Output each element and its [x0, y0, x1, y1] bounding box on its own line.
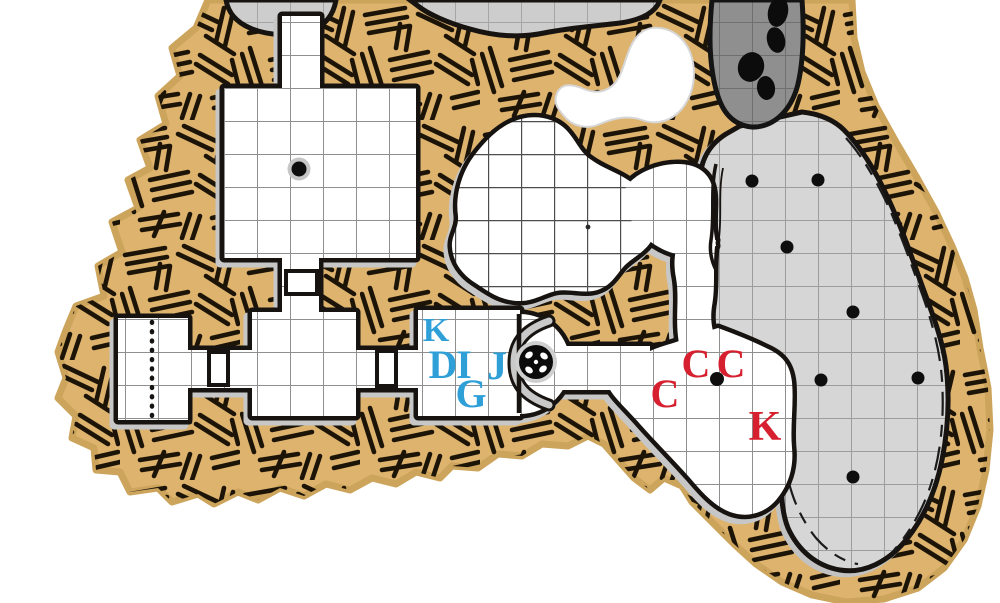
door-icon: [286, 271, 317, 294]
room-label-J-blue: J: [487, 343, 507, 388]
dark-cave-passage: [710, 0, 803, 127]
door-icon: [209, 352, 228, 385]
room-label-D-blue: D: [429, 342, 458, 387]
cavern-label-C-red: C: [682, 341, 711, 386]
stalagmite-dot-icon: [746, 175, 759, 188]
door-icon: [377, 351, 396, 386]
dungeon-map: K D I J G C C C K: [0, 0, 1000, 603]
stalagmite-dot-icon: [815, 374, 828, 387]
room-label-G-blue: G: [455, 371, 486, 416]
pillar-dot-icon: [292, 162, 307, 177]
floor-speck: [586, 225, 591, 230]
stalagmite-dot-icon: [781, 241, 794, 254]
stalagmite-dot-icon: [847, 306, 860, 319]
cavern-label-C-red: C: [651, 371, 680, 416]
stalagmite-dot-icon: [812, 174, 825, 187]
dungeon-map-svg: K D I J G C C C K: [0, 0, 1000, 603]
cavern-label-K-red: K: [749, 404, 782, 450]
cavern-label-C-red: C: [717, 341, 746, 386]
stalagmite-dot-icon: [912, 372, 925, 385]
stalagmite-dot-icon: [847, 471, 860, 484]
